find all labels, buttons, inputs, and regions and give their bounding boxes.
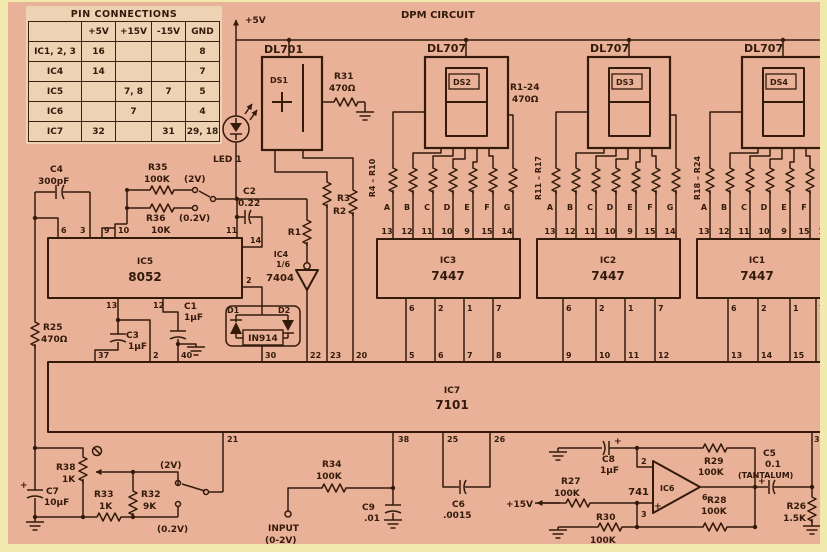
cell: 32 — [82, 122, 116, 142]
cap-ref: C8 — [602, 455, 615, 465]
polarity-sign: + — [614, 437, 622, 447]
cap-value: 300pF — [38, 177, 69, 187]
decoder-ic1: IC1 7447 6 2 1 7 — [697, 239, 827, 362]
table-row: IC7 32 31 29, 18 — [29, 122, 220, 142]
cell: 14 — [82, 62, 116, 82]
ground-icon — [26, 522, 44, 530]
ic-ref: IC7 — [444, 386, 460, 396]
pin-number: 10 — [758, 227, 770, 236]
bottom-left-network: + C7 10µF R38 1K R33 1K R32 9K (2V) (0.2… — [20, 432, 223, 535]
cap-value: 1µF — [128, 342, 147, 352]
pin-number: 37 — [98, 351, 109, 360]
segment-letter: D — [444, 203, 451, 212]
resistor-value: 100K — [698, 468, 725, 478]
cap-value: 10µF — [44, 498, 69, 508]
pin-number: 2 — [641, 457, 647, 466]
cap-value: .0015 — [443, 511, 471, 521]
cell: 29, 18 — [186, 122, 220, 142]
pin-number: 13 — [698, 227, 709, 236]
row-label: IC6 — [29, 102, 82, 122]
range-label: (0.2V) — [179, 214, 210, 224]
bank-range-label: R11 – R17 — [534, 156, 543, 200]
page-margin-left — [0, 0, 8, 552]
pin-number: 10 — [604, 227, 616, 236]
pin-number: 2 — [438, 304, 444, 313]
resistor-ref: R28 — [707, 496, 726, 506]
resistor-ref: R31 — [334, 72, 353, 82]
pin-number: 11 — [421, 227, 433, 236]
diode-icon — [230, 322, 242, 334]
pin-number: 11 — [226, 226, 238, 235]
cell — [152, 102, 186, 122]
pin-number: 6 — [731, 304, 737, 313]
pin-number: 2 — [761, 304, 767, 313]
resistor-value: 9K — [143, 502, 157, 512]
resistor-ref: R32 — [141, 490, 160, 500]
row-label: IC4 — [29, 62, 82, 82]
table-row: IC6 7 4 — [29, 102, 220, 122]
resistor-ref: R34 — [322, 460, 341, 470]
cap-ref: C9 — [362, 503, 375, 513]
bank-note-value: 470Ω — [512, 95, 539, 105]
resistor-r25: R25 470Ω — [31, 320, 68, 448]
display-ref-label: DS4 — [770, 78, 788, 87]
cell: 5 — [186, 82, 220, 102]
seven-segment-glyph — [272, 64, 303, 132]
resistor-ref: R27 — [561, 477, 580, 487]
capacitor-c6: C6 .0015 — [443, 432, 490, 521]
pin-number: 14 — [761, 351, 773, 360]
cell — [82, 82, 116, 102]
cell: 7 — [152, 82, 186, 102]
pin-number: 6 — [702, 493, 708, 502]
pin-number: 1 — [628, 304, 634, 313]
display-part-label: DL701 — [264, 43, 303, 56]
ground-icon — [356, 112, 374, 120]
cap-value: 1µF — [184, 313, 203, 323]
pin-number: 6 — [566, 304, 572, 313]
pin-number: 13 — [106, 301, 117, 310]
ic7-chip: IC7 7101 37 2 40 30 22 23 20 5 6 7 8 9 1… — [48, 351, 827, 444]
page-margin-top — [0, 0, 827, 2]
ic-part: 7101 — [435, 398, 468, 412]
segment-letter: E — [464, 203, 469, 212]
cell — [116, 42, 152, 62]
segment-letter: B — [404, 203, 410, 212]
pin-number: 13 — [544, 227, 555, 236]
display-ref-label: DS3 — [616, 78, 634, 87]
bank-range-label: R4 – R10 — [368, 158, 377, 197]
resistor-ref: R29 — [704, 457, 723, 467]
segment-letter: D — [607, 203, 614, 212]
segment-letter: B — [721, 203, 727, 212]
pin-table-header: GND — [186, 22, 220, 42]
resistor-value: 1.5K — [783, 514, 807, 524]
cell — [152, 62, 186, 82]
display-ds4: DL707 DS4 — [742, 40, 824, 148]
resistor-ref: R38 — [56, 463, 75, 473]
pin-number: 3 — [80, 226, 86, 235]
capacitor-c2: C2 0.22 — [237, 187, 307, 247]
cell: 31 — [152, 122, 186, 142]
resistor-value: 470Ω — [41, 335, 68, 345]
pin-number: 15 — [481, 227, 493, 236]
resistor-value: 1K — [99, 502, 113, 512]
pin-number: 13 — [381, 227, 392, 236]
range-label: (2V) — [160, 461, 181, 471]
resistor-ref: R25 — [43, 323, 62, 333]
segment-letter: G — [667, 203, 674, 212]
segment-letter: C — [424, 203, 430, 212]
table-row: IC1, 2, 3 16 8 — [29, 42, 220, 62]
range-label: (0.2V) — [157, 525, 188, 535]
resistor-ref: R1 — [288, 228, 301, 238]
ic-ref: IC3 — [440, 256, 456, 266]
diode-ref: D1 — [227, 306, 240, 315]
display-ref-label: DS1 — [270, 76, 288, 85]
pin-number: 10 — [118, 226, 130, 235]
pin-number: 11 — [584, 227, 596, 236]
noninverting-sign: + — [654, 502, 662, 512]
ground-icon — [549, 452, 567, 460]
pin-number: 22 — [310, 351, 321, 360]
pin-table-header: +5V — [82, 22, 116, 42]
segment-letter: G — [504, 203, 511, 212]
segment-letter: D — [761, 203, 768, 212]
table-row: IC5 7, 8 7 5 — [29, 82, 220, 102]
diode-part-label: IN914 — [248, 334, 278, 344]
ic-part: 7447 — [591, 269, 624, 283]
ic-ref: IC1 — [749, 256, 765, 266]
pin-number: 26 — [494, 435, 506, 444]
bank-range-label: R18 – R24 — [693, 155, 702, 200]
cap-value: 0.22 — [238, 199, 260, 209]
pin-number: 12 — [564, 227, 575, 236]
segment-letter: C — [741, 203, 747, 212]
pin-number: 40 — [181, 351, 193, 360]
segment-letter: A — [547, 203, 554, 212]
pin-number: 7 — [467, 351, 473, 360]
input-network: R34 100K C9 .01 INPUT (0-2V) — [265, 432, 402, 546]
display-part-label: DL707 — [744, 42, 783, 55]
input-terminal — [285, 511, 291, 517]
pin-number: 12 — [658, 351, 669, 360]
cell: 4 — [186, 102, 220, 122]
pin-number: 3 — [641, 510, 647, 519]
pin-number: 14 — [664, 227, 676, 236]
resistor-value: 100K — [316, 472, 343, 482]
pin-number: 13 — [731, 351, 742, 360]
pin-number: 11 — [738, 227, 750, 236]
ic-ref: IC2 — [600, 256, 616, 266]
pin-number: 1 — [793, 304, 799, 313]
segment-letter: E — [781, 203, 786, 212]
segment-letter: C — [587, 203, 593, 212]
cap-ref: C5 — [763, 449, 776, 459]
resistor-ref: R33 — [94, 490, 113, 500]
pin-number: 10 — [599, 351, 611, 360]
pin-number: 14 — [250, 236, 262, 245]
resistor-r31: R31 470Ω — [322, 72, 374, 120]
display-ref-label: DS2 — [453, 78, 471, 87]
power-rail: +5V — [236, 16, 820, 40]
resistor-value: 100K — [554, 489, 581, 499]
ic-part: 7404 — [266, 273, 294, 284]
table-row: IC4 14 7 — [29, 62, 220, 82]
ic-ref: IC6 — [660, 484, 675, 493]
led-label: LED 1 — [213, 155, 242, 165]
cell — [152, 42, 186, 62]
bank-note-ref: R1-24 — [510, 83, 539, 93]
resistor-ref: R36 — [146, 214, 165, 224]
resistor-value: 100K — [701, 507, 728, 517]
resistor-ref: R26 — [787, 502, 806, 512]
pin-number: 11 — [628, 351, 640, 360]
page-margin-right — [820, 0, 827, 552]
segment-letter: F — [801, 203, 806, 212]
diode-icon — [282, 320, 294, 331]
cap-ref: C4 — [50, 165, 63, 175]
cell — [116, 122, 152, 142]
ic-part: 8052 — [128, 270, 161, 284]
segment-resistor-bank-2: A B C D E F G 13 12 11 10 9 15 14 R11 – … — [534, 112, 680, 239]
pin-number: 9 — [566, 351, 572, 360]
segment-letter: F — [484, 203, 489, 212]
page-title: DPM CIRCUIT — [401, 10, 475, 21]
range-label: (2V) — [184, 175, 205, 185]
polarity-sign: + — [20, 481, 28, 491]
pin-number: 5 — [409, 351, 415, 360]
ground-icon — [803, 526, 821, 534]
rail-voltage-label: +5V — [245, 16, 266, 26]
resistor-ref: R30 — [596, 513, 615, 523]
cell: 7 — [186, 62, 220, 82]
ic-ref: IC5 — [137, 257, 153, 267]
display-ds2: DL707 DS2 — [425, 40, 508, 148]
ic-part: 7447 — [431, 269, 464, 283]
pin-number: 9 — [464, 227, 470, 236]
supply-label: +15V — [506, 500, 533, 510]
cap-value: 1µF — [600, 466, 619, 476]
cap-ref: C6 — [452, 500, 465, 510]
magazine-schematic-page: PIN CONNECTIONS +5V +15V -15V GND IC1, 2… — [0, 0, 827, 552]
cap-value: .01 — [364, 514, 380, 524]
ic5-chip: IC5 8052 6 3 9 10 11 13 12 2 14 — [48, 226, 262, 310]
cell: 7, 8 — [116, 82, 152, 102]
pin-number: 15 — [644, 227, 656, 236]
pin-number: 23 — [330, 351, 341, 360]
display-part-label: DL707 — [590, 42, 629, 55]
pin-table-header: +15V — [116, 22, 152, 42]
cap-value: 0.1 — [765, 460, 781, 470]
resistor-ref: R3 — [337, 194, 350, 204]
pin-number: 10 — [441, 227, 453, 236]
pin-number: 9 — [781, 227, 787, 236]
pin-number: 12 — [718, 227, 729, 236]
resistor-value: 100K — [144, 175, 171, 185]
pin-number: 2 — [246, 276, 252, 285]
segment-letter: A — [701, 203, 708, 212]
decoder-ic3: IC3 7447 6 2 1 7 — [377, 239, 520, 362]
segment-letter: A — [384, 203, 391, 212]
opamp-section: +15V C8 1µF + R27 100K R30 100K R29 100K… — [506, 432, 821, 546]
pin-number: 7 — [658, 304, 664, 313]
inverter-icon — [296, 270, 318, 290]
pin-number: 20 — [356, 351, 368, 360]
pin-number: 2 — [599, 304, 605, 313]
pin-number: 25 — [447, 435, 459, 444]
resistor-value: 10K — [151, 226, 172, 236]
ground-icon — [384, 520, 402, 528]
pin-number: 6 — [61, 226, 67, 235]
decoder-ic2: IC2 7447 6 2 1 7 — [537, 239, 680, 362]
cap-ref: C2 — [243, 187, 256, 197]
row-label: IC5 — [29, 82, 82, 102]
cell: 16 — [82, 42, 116, 62]
capacitor-c4: C4 300pF — [35, 165, 90, 320]
pin-number: 15 — [798, 227, 810, 236]
pin-number: 38 — [398, 435, 410, 444]
ic-ref: IC4 — [274, 250, 289, 259]
circuit-title: DPM CIRCUIT — [401, 10, 475, 21]
pin-number: 30 — [265, 351, 277, 360]
led-diode-icon — [230, 123, 242, 132]
resistor-value: 470Ω — [329, 84, 356, 94]
input-label: INPUT — [268, 524, 300, 534]
pin-number: 15 — [793, 351, 805, 360]
pin-number: 6 — [409, 304, 415, 313]
ic-fraction: 1/6 — [276, 260, 290, 269]
ic-part: 7447 — [740, 269, 773, 283]
display-ds1: DL701 DS1 — [262, 40, 353, 188]
pin-table-corner — [29, 22, 82, 42]
display-part-label: DL707 — [427, 42, 466, 55]
cell — [116, 62, 152, 82]
segment-letter: E — [627, 203, 632, 212]
resistor-value: 1K — [62, 475, 76, 485]
opamp-part-label: 741 — [628, 487, 649, 498]
page-margin-bottom — [0, 544, 827, 552]
display-ds3: DL707 DS3 — [588, 40, 670, 148]
resistor-ref: R2 — [333, 207, 346, 217]
cap-ref: C3 — [126, 331, 139, 341]
segment-resistor-bank-1: A B C D E F G 13 12 11 10 9 15 14 R4 – R… — [368, 112, 517, 239]
pin-number: 6 — [438, 351, 444, 360]
cell: 7 — [116, 102, 152, 122]
cap-ref: C7 — [46, 487, 59, 497]
polarity-sign: + — [758, 477, 766, 487]
row-label: IC7 — [29, 122, 82, 142]
pin-number: 9 — [627, 227, 633, 236]
pin-number: 2 — [153, 351, 159, 360]
pin-number: 1 — [467, 304, 473, 313]
pin-table-header: -15V — [152, 22, 186, 42]
row-label: IC1, 2, 3 — [29, 42, 82, 62]
pin-number: 21 — [227, 435, 239, 444]
diode-ref: D2 — [278, 306, 290, 315]
segment-resistor-bank-3: A B C D E F G 13 12 11 10 9 15 14 R18 – … — [693, 112, 827, 239]
cell: 8 — [186, 42, 220, 62]
cap-note: (TANTALUM) — [738, 471, 793, 480]
pin-table-title: PIN CONNECTIONS — [28, 8, 220, 21]
pin-connections-table: PIN CONNECTIONS +5V +15V -15V GND IC1, 2… — [26, 6, 222, 144]
cell — [82, 102, 116, 122]
pin-number: 14 — [501, 227, 513, 236]
pin-number: 12 — [401, 227, 412, 236]
segment-letter: F — [647, 203, 652, 212]
pin-number: 8 — [496, 351, 502, 360]
ground-icon — [549, 530, 567, 538]
cap-ref: C1 — [184, 302, 197, 312]
pin-number: 7 — [496, 304, 502, 313]
segment-letter: B — [567, 203, 573, 212]
resistor-ref: R35 — [148, 163, 167, 173]
